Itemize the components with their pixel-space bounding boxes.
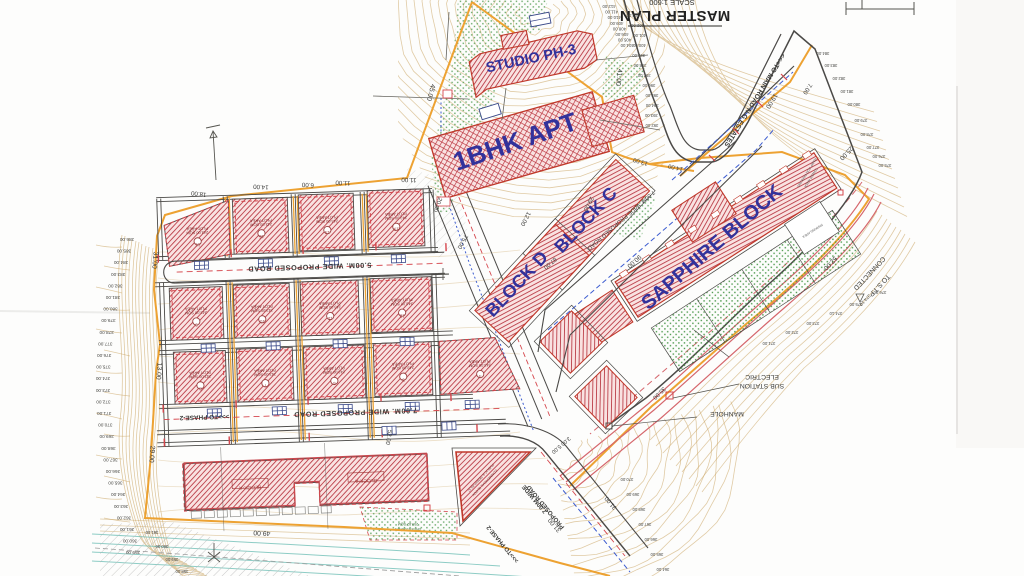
svg-text:362.00: 362.00 xyxy=(116,515,131,520)
svg-text:375.00: 375.00 xyxy=(878,163,891,168)
svg-text:374.00: 374.00 xyxy=(95,376,110,381)
svg-text:16: 16 xyxy=(195,242,201,247)
svg-text:405.00: 405.00 xyxy=(617,38,631,43)
svg-text:368.00: 368.00 xyxy=(101,446,116,451)
svg-text:363.00: 363.00 xyxy=(113,504,128,509)
svg-text:243.00 SQM: 243.00 SQM xyxy=(186,230,208,236)
svg-text:384.00: 384.00 xyxy=(113,260,128,265)
svg-text:381.00: 381.00 xyxy=(840,89,853,94)
svg-text:243.00 SQM: 243.00 SQM xyxy=(251,308,273,314)
svg-text:243.00 SQM: 243.00 SQM xyxy=(319,305,341,311)
svg-text:243.00 SQM: 243.00 SQM xyxy=(250,222,272,228)
svg-text:370.00: 370.00 xyxy=(98,423,113,428)
svg-text:399.00: 399.00 xyxy=(632,53,645,58)
svg-text:377.00: 377.00 xyxy=(98,341,113,346)
svg-text:360.30: 360.30 xyxy=(155,544,168,549)
svg-text:367.00: 367.00 xyxy=(103,457,118,462)
svg-text:400.00: 400.00 xyxy=(632,43,645,48)
svg-text:359.00: 359.00 xyxy=(165,557,178,562)
svg-text:ELECTRIC: ELECTRIC xyxy=(745,373,779,380)
svg-text:376.00: 376.00 xyxy=(97,353,112,358)
svg-text:383.00: 383.00 xyxy=(111,272,126,277)
svg-text:243.00 SQM: 243.00 SQM xyxy=(189,374,211,380)
svg-text:408.00: 408.00 xyxy=(612,26,626,31)
svg-text:361.00: 361.00 xyxy=(119,527,134,532)
svg-text:406.00: 406.00 xyxy=(615,32,629,37)
svg-text:BLOCK-A: BLOCK-A xyxy=(354,477,377,484)
svg-text:364.00: 364.00 xyxy=(111,492,126,497)
svg-text:396.00: 396.00 xyxy=(642,83,655,88)
svg-text:243.00 SQM: 243.00 SQM xyxy=(316,219,338,225)
svg-text:13: 13 xyxy=(393,227,399,232)
svg-text:49.00: 49.00 xyxy=(253,529,271,537)
svg-text:367.00: 367.00 xyxy=(638,522,651,527)
svg-text:SCALE 1:600: SCALE 1:600 xyxy=(649,0,694,7)
svg-text:11: 11 xyxy=(327,316,332,321)
svg-text:358.00: 358.00 xyxy=(175,569,188,574)
svg-text:13.00: 13.00 xyxy=(154,362,162,380)
svg-text:12: 12 xyxy=(399,314,405,319)
svg-text:395.00: 395.00 xyxy=(645,93,658,98)
svg-text:379.00: 379.00 xyxy=(101,318,116,323)
svg-text:365.00: 365.00 xyxy=(650,552,663,557)
svg-text:411.00: 411.00 xyxy=(605,10,618,15)
svg-text:364.00: 364.00 xyxy=(656,567,669,572)
svg-text:376.00: 376.00 xyxy=(872,154,885,159)
svg-text:397.00: 397.00 xyxy=(637,73,650,78)
svg-text:382.00: 382.00 xyxy=(108,283,123,288)
svg-text:370.00: 370.00 xyxy=(620,477,633,482)
svg-text:398.00: 398.00 xyxy=(633,63,646,68)
svg-text:376.00: 376.00 xyxy=(873,290,886,295)
svg-text:366.00: 366.00 xyxy=(644,537,657,542)
svg-text:360.00: 360.00 xyxy=(122,539,137,544)
svg-text:374.10: 374.10 xyxy=(829,311,842,316)
svg-text:372.00: 372.00 xyxy=(785,330,798,335)
svg-text:380.00: 380.00 xyxy=(847,102,860,107)
svg-text:379.00: 379.00 xyxy=(854,118,867,123)
svg-text:410.00: 410.00 xyxy=(607,15,621,20)
svg-text:401.00: 401.00 xyxy=(633,33,646,38)
svg-text:31.00: 31.00 xyxy=(150,251,158,269)
svg-text:369.00: 369.00 xyxy=(626,492,639,497)
svg-text:371.00: 371.00 xyxy=(97,411,112,416)
svg-text:359.00: 359.00 xyxy=(125,550,140,555)
svg-text:403.00: 403.00 xyxy=(626,13,639,18)
svg-text:380.00: 380.00 xyxy=(103,307,118,312)
svg-text:393.00: 393.00 xyxy=(644,113,657,118)
svg-text:383.00: 383.00 xyxy=(824,63,837,68)
svg-text:412.00: 412.00 xyxy=(602,4,616,9)
svg-text:243.00 SQM: 243.00 SQM xyxy=(185,310,207,316)
svg-text:385.00: 385.00 xyxy=(116,249,131,254)
svg-text:243.00 SQM: 243.00 SQM xyxy=(385,215,407,221)
svg-text:375.00: 375.00 xyxy=(96,365,111,370)
svg-text:243.00 SQM: 243.00 SQM xyxy=(254,372,276,378)
svg-text:SUB STATION: SUB STATION xyxy=(740,382,784,389)
svg-text:378.00: 378.00 xyxy=(99,330,114,335)
svg-text:382.00: 382.00 xyxy=(832,76,845,81)
svg-text:243.00 SQM: 243.00 SQM xyxy=(392,365,414,371)
svg-text:369.00: 369.00 xyxy=(99,434,114,439)
svg-text:392.00: 392.00 xyxy=(645,123,658,128)
svg-text:386.00: 386.00 xyxy=(119,237,134,242)
svg-text:243.00 SQM: 243.00 SQM xyxy=(323,370,345,376)
svg-text:373.00: 373.00 xyxy=(95,388,110,393)
svg-text:381.00: 381.00 xyxy=(105,295,120,300)
svg-text:14.00: 14.00 xyxy=(252,183,268,191)
svg-text:243.00 SQM: 243.00 SQM xyxy=(391,301,413,307)
svg-text:375.00: 375.00 xyxy=(849,302,862,307)
svg-text:361.00: 361.00 xyxy=(145,530,158,535)
svg-text:409.00: 409.00 xyxy=(610,21,624,26)
svg-text:368.00: 368.00 xyxy=(632,507,645,512)
svg-text:MANHOLE: MANHOLE xyxy=(710,410,744,417)
svg-text:372.00: 372.00 xyxy=(96,399,111,404)
svg-text:259.82 SQM: 259.82 SQM xyxy=(398,522,418,526)
svg-text:6.00: 6.00 xyxy=(301,181,314,189)
svg-text:11.00: 11.00 xyxy=(335,179,351,187)
svg-text:366.00: 366.00 xyxy=(105,469,120,474)
svg-text:377.00: 377.00 xyxy=(866,145,879,150)
svg-text:371.00: 371.00 xyxy=(762,341,775,346)
svg-text:373.00: 373.00 xyxy=(806,321,819,326)
svg-text:14: 14 xyxy=(324,230,330,235)
svg-text:11.00: 11.00 xyxy=(401,176,417,184)
svg-text:402.00: 402.00 xyxy=(630,23,643,28)
svg-text:10: 10 xyxy=(259,319,265,324)
svg-text:404.00: 404.00 xyxy=(620,43,634,48)
svg-text:394.00: 394.00 xyxy=(645,103,658,108)
svg-text:BLOCK-A: BLOCK-A xyxy=(238,484,261,491)
svg-text:384.00: 384.00 xyxy=(816,51,829,56)
svg-text:29.00: 29.00 xyxy=(147,445,155,463)
svg-text:365.00: 365.00 xyxy=(108,481,123,486)
svg-text:378.00: 378.00 xyxy=(860,132,873,137)
svg-text:15: 15 xyxy=(258,234,264,239)
svg-text:243.00 SQM: 243.00 SQM xyxy=(469,363,491,369)
